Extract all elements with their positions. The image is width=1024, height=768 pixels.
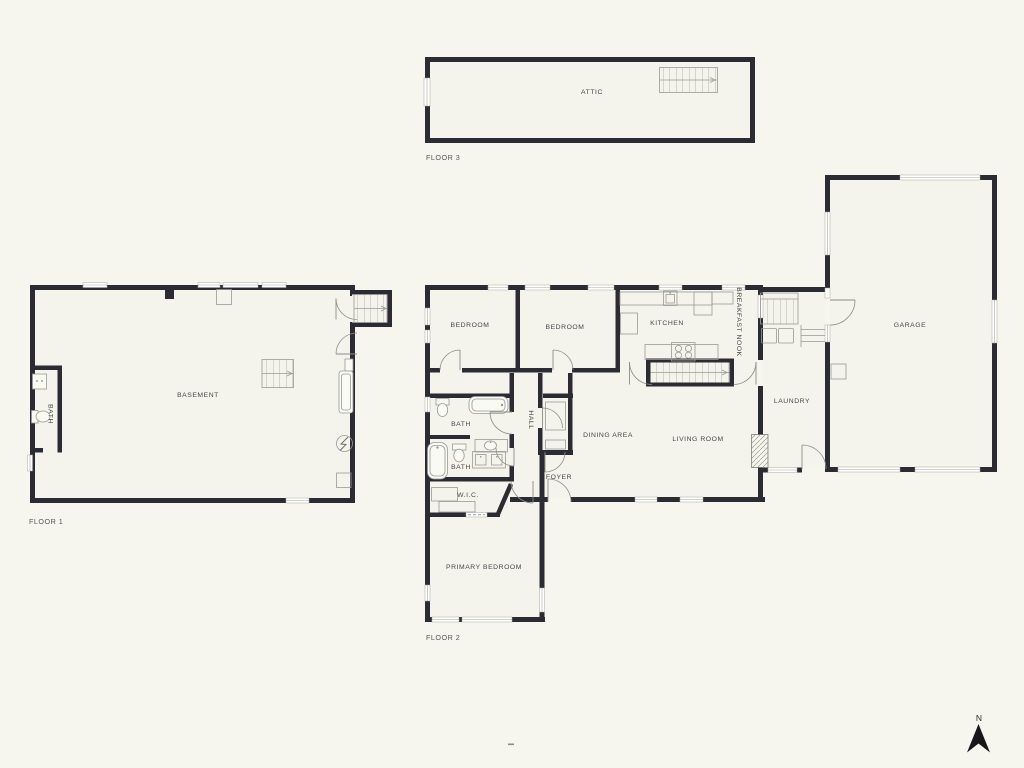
room-label-laundry: LAUNDRY <box>774 398 810 405</box>
basement-wall-stub <box>165 285 174 299</box>
fireplace <box>752 435 769 468</box>
room-label-foyer: FOYER <box>546 474 572 481</box>
room-label-bedroom-2: BEDROOM <box>546 324 585 331</box>
room-label-bath-lower: BATH <box>451 464 471 471</box>
floor3-label: FLOOR 3 <box>426 153 460 162</box>
floor1-label: FLOOR 1 <box>29 517 63 526</box>
room-label-primary-bedroom: PRIMARY BEDROOM <box>446 564 522 571</box>
bathtub <box>428 443 448 480</box>
north-label: N <box>976 713 982 723</box>
attic-window <box>424 78 430 106</box>
attic-staircase <box>660 68 718 93</box>
floor-plan-canvas: ATTIC FLOOR 3 <box>0 0 1024 768</box>
bathtub <box>469 397 508 414</box>
footer-mark <box>508 744 514 746</box>
room-label-kitchen: KITCHEN <box>650 320 684 327</box>
basement-staircase <box>262 360 294 388</box>
room-label-garage: GARAGE <box>894 322 926 329</box>
room-label-basement: BASEMENT <box>177 392 219 399</box>
sink <box>33 374 47 389</box>
room-label-breakfast-nook: BREAKFAST NOOK <box>735 287 742 357</box>
basement-entry-stairwell <box>349 290 392 327</box>
room-label-bath-upper: BATH <box>451 421 471 428</box>
room-label-basement-bath: BATH <box>47 404 54 424</box>
room-label-attic: ATTIC <box>581 89 603 96</box>
main-staircase <box>646 359 734 387</box>
room-label-dining-area: DINING AREA <box>583 432 633 439</box>
room-label-bedroom-1: BEDROOM <box>451 322 490 329</box>
toilet <box>436 399 449 417</box>
room-label-hall: HALL <box>527 410 534 429</box>
room-label-living-room: LIVING ROOM <box>672 436 723 443</box>
floor2-label: FLOOR 2 <box>426 633 460 642</box>
room-label-wic: W.I.C. <box>457 492 479 499</box>
floor1-basement-plan: BATH BASEMENT FLOOR 1 <box>28 283 393 527</box>
